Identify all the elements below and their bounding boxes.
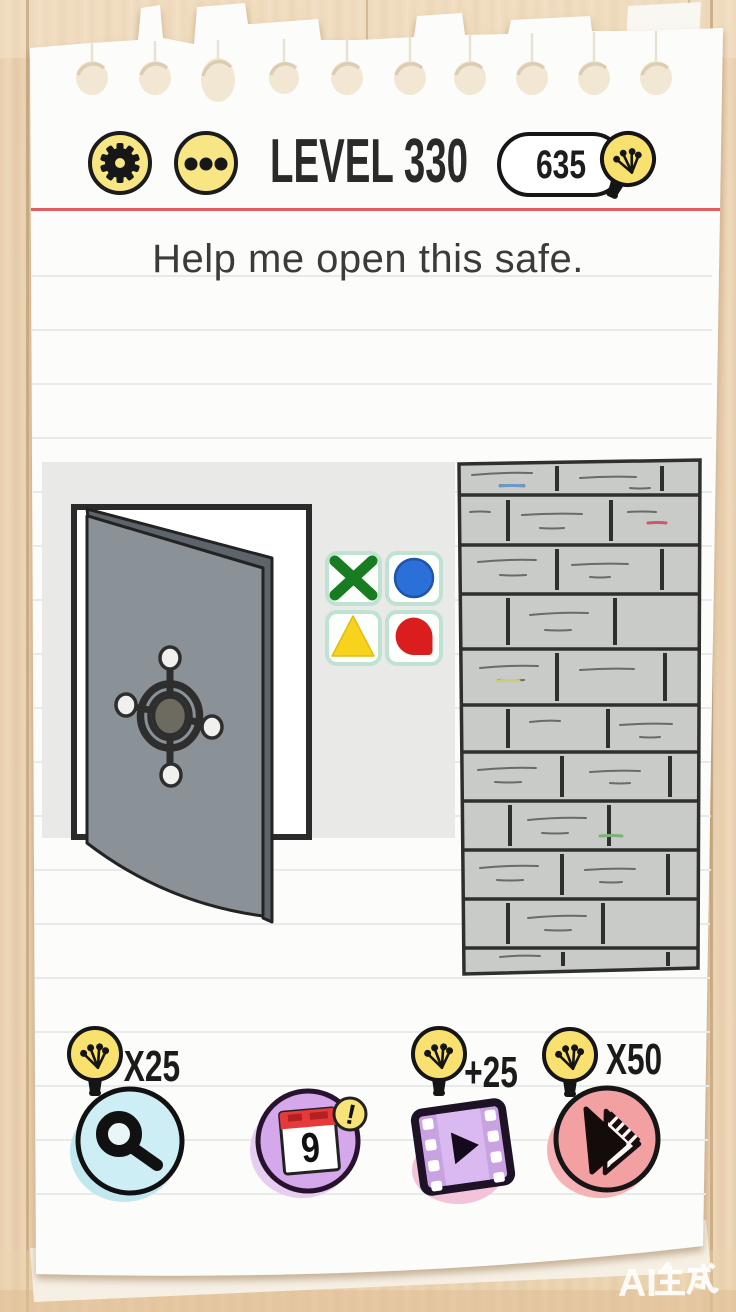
svg-text:+25: +25 bbox=[464, 1048, 518, 1097]
svg-text:X50: X50 bbox=[606, 1035, 662, 1084]
svg-text:Help me open this safe.: Help me open this safe. bbox=[152, 237, 584, 281]
svg-text:635: 635 bbox=[536, 143, 586, 187]
svg-text:AI: AI bbox=[618, 1262, 657, 1305]
svg-text:LEVEL 330: LEVEL 330 bbox=[270, 126, 468, 196]
svg-text:X25: X25 bbox=[124, 1042, 180, 1091]
